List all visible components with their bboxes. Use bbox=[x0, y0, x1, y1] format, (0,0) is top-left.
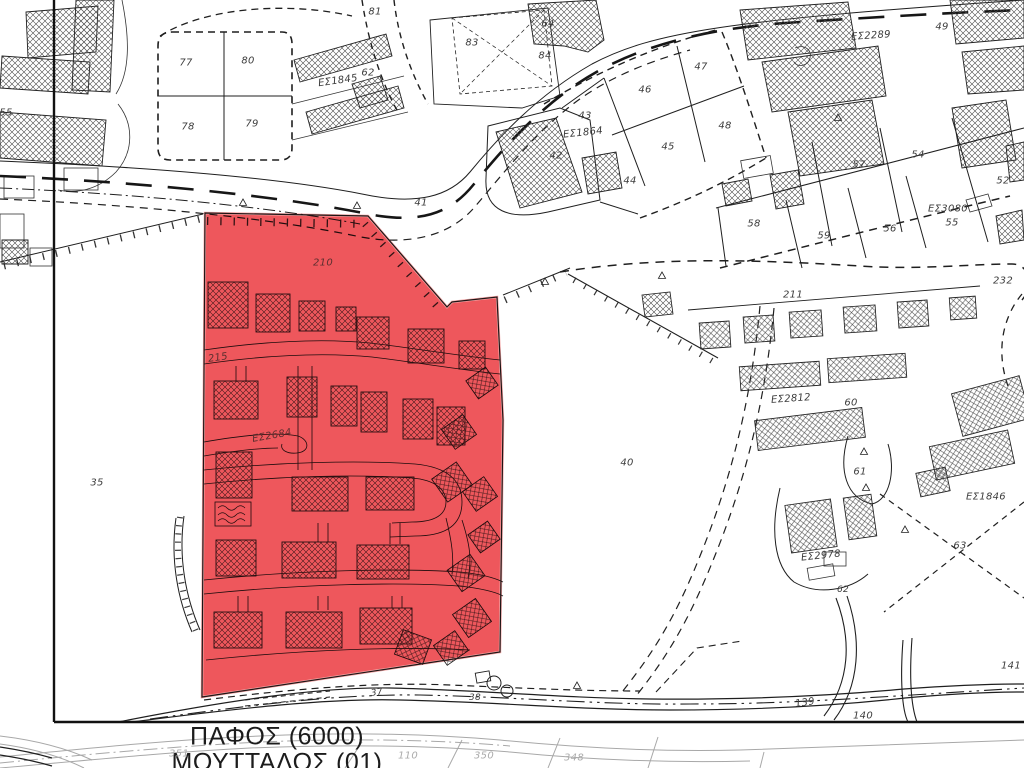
parcel-block-77-80 bbox=[158, 32, 292, 160]
highlight-overlay bbox=[202, 213, 503, 697]
parcel-83-84 bbox=[430, 0, 604, 108]
small-outlines-east bbox=[807, 552, 846, 580]
outside-sheet-marks bbox=[0, 747, 52, 766]
apartment-blocks-northwest bbox=[0, 0, 114, 264]
cadastral-map: 5577807879ΕΣ184562816483844143ΕΣ18644244… bbox=[0, 0, 1024, 768]
stream bbox=[174, 516, 200, 632]
houses-east bbox=[642, 292, 1024, 553]
outside-sheet bbox=[0, 734, 1024, 768]
apartment-complexes-northeast bbox=[722, 0, 1024, 244]
map-linework bbox=[0, 0, 1024, 768]
parcel-es1845 bbox=[292, 34, 408, 140]
